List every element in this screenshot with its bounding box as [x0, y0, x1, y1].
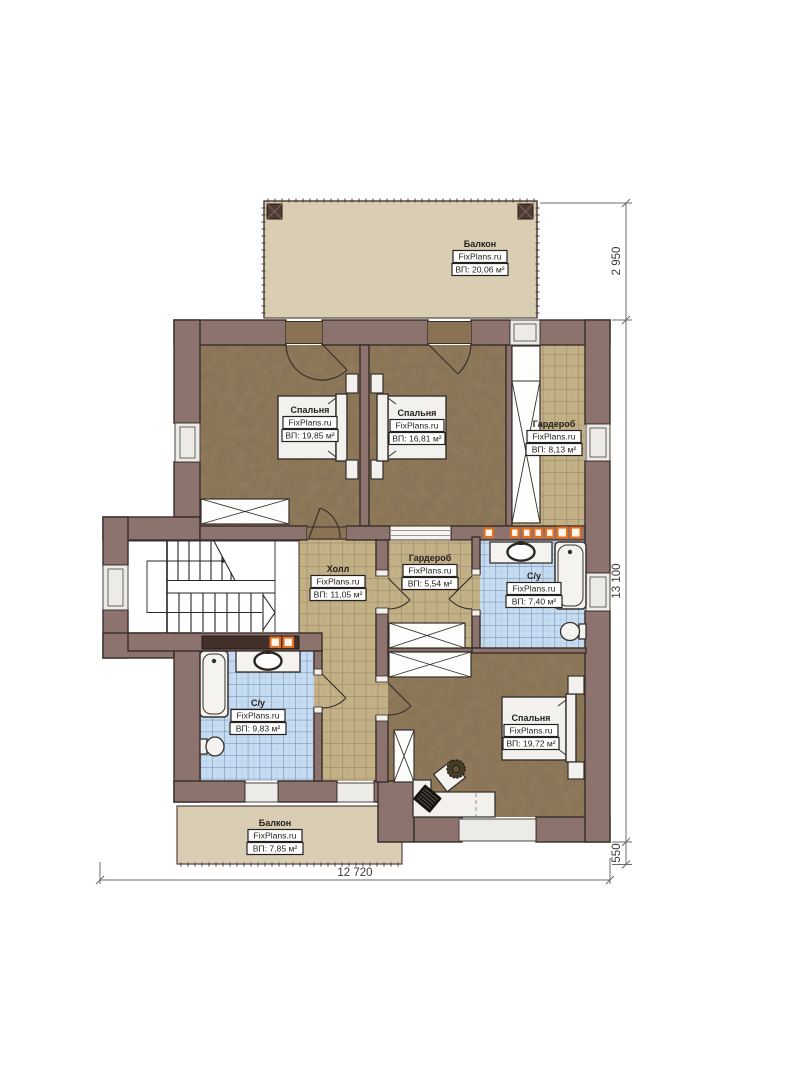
svg-text:С/у: С/у — [251, 698, 265, 708]
svg-text:Спальня: Спальня — [512, 713, 551, 723]
svg-text:FixPlans.ru: FixPlans.ru — [396, 421, 439, 431]
svg-text:Спальня: Спальня — [291, 405, 330, 415]
svg-text:ВП: 16,81 м²: ВП: 16,81 м² — [392, 434, 441, 444]
svg-text:FixPlans.ru: FixPlans.ru — [459, 252, 502, 262]
svg-text:Балкон: Балкон — [259, 818, 292, 828]
svg-text:FixPlans.ru: FixPlans.ru — [513, 584, 556, 594]
svg-text:FixPlans.ru: FixPlans.ru — [237, 711, 280, 721]
svg-text:FixPlans.ru: FixPlans.ru — [254, 831, 297, 841]
svg-text:Гардероб: Гардероб — [533, 419, 576, 429]
svg-text:ВП: 7,40 м²: ВП: 7,40 м² — [512, 597, 557, 607]
svg-text:ВП: 9,83 м²: ВП: 9,83 м² — [236, 724, 281, 734]
svg-text:Холл: Холл — [327, 564, 350, 574]
svg-text:FixPlans.ru: FixPlans.ru — [510, 726, 553, 736]
svg-text:FixPlans.ru: FixPlans.ru — [533, 432, 576, 442]
svg-text:ВП: 8,13 м²: ВП: 8,13 м² — [532, 445, 577, 455]
svg-text:FixPlans.ru: FixPlans.ru — [289, 418, 332, 428]
svg-text:550: 550 — [611, 843, 623, 862]
svg-text:FixPlans.ru: FixPlans.ru — [409, 566, 452, 576]
svg-text:FixPlans.ru: FixPlans.ru — [317, 577, 360, 587]
svg-text:С/у: С/у — [527, 571, 541, 581]
svg-text:ВП: 19,85 м²: ВП: 19,85 м² — [285, 431, 334, 441]
svg-text:ВП: 11,05 м²: ВП: 11,05 м² — [314, 590, 363, 600]
svg-text:13 100: 13 100 — [611, 563, 623, 598]
svg-text:ВП: 19,72 м²: ВП: 19,72 м² — [506, 739, 555, 749]
svg-text:Гардероб: Гардероб — [409, 553, 452, 563]
svg-text:2 950: 2 950 — [611, 247, 623, 276]
svg-text:12 720: 12 720 — [337, 867, 372, 879]
svg-text:ВП: 20,06 м²: ВП: 20,06 м² — [455, 265, 504, 275]
svg-text:Балкон: Балкон — [464, 239, 497, 249]
svg-text:ВП: 5,54 м²: ВП: 5,54 м² — [408, 579, 453, 589]
svg-text:ВП: 7,85 м²: ВП: 7,85 м² — [253, 844, 298, 854]
svg-text:Спальня: Спальня — [398, 408, 437, 418]
